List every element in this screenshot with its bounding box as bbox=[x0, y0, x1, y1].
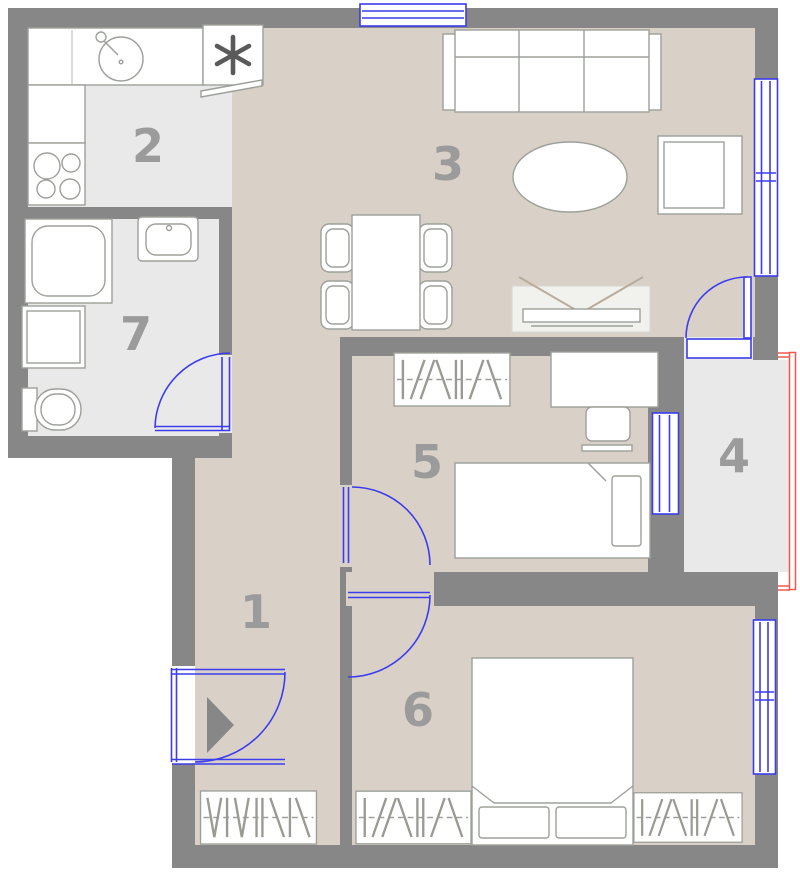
room-3-label: 3 bbox=[432, 141, 464, 187]
room-2-kitchen-floor bbox=[28, 28, 232, 207]
wall-bottom bbox=[172, 845, 778, 868]
wall-hall-left bbox=[172, 458, 195, 845]
balcony-door-gap bbox=[684, 337, 753, 360]
room-1-label: 1 bbox=[240, 589, 272, 635]
wall-balcony-left bbox=[648, 337, 684, 578]
room-1-hall-floor bbox=[195, 458, 232, 845]
wall-top bbox=[8, 8, 772, 28]
room-5-bedroom-floor bbox=[352, 356, 648, 572]
wall-left bbox=[8, 8, 28, 458]
wall-bath-top bbox=[8, 207, 232, 219]
room-5-label: 5 bbox=[411, 439, 443, 485]
room-6-door-gap bbox=[346, 572, 434, 606]
wall-living-bed5 bbox=[340, 337, 684, 356]
wall-bath-bottom bbox=[8, 436, 232, 458]
room-5-door-gap bbox=[340, 485, 352, 567]
wall-right-upper bbox=[755, 8, 778, 360]
wall-balcony-top-right bbox=[753, 337, 778, 360]
entrance-door-gap bbox=[169, 666, 195, 764]
room-4-label: 4 bbox=[718, 433, 750, 479]
room-6-label: 6 bbox=[402, 687, 434, 733]
apartment-floor-plan: 1 2 3 4 5 6 7 bbox=[0, 0, 800, 872]
room-7-label: 7 bbox=[120, 311, 152, 357]
wall-right-lower bbox=[755, 572, 778, 868]
bathroom-door-gap bbox=[219, 355, 232, 433]
room-3-living-floor bbox=[232, 28, 755, 337]
room-2-label: 2 bbox=[132, 123, 164, 169]
